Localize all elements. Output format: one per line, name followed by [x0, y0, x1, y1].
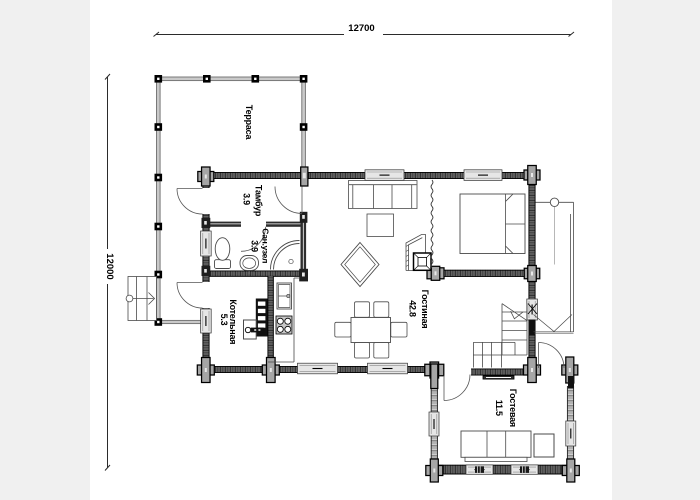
- svg-text:5.3: 5.3: [219, 314, 229, 326]
- svg-text:Гостевая: Гостевая: [508, 389, 518, 427]
- svg-text:11.5: 11.5: [494, 400, 504, 416]
- svg-text:Терраса: Терраса: [244, 105, 254, 141]
- svg-text:3.9: 3.9: [250, 240, 260, 252]
- svg-text:Сан.узел: Сан.узел: [261, 228, 271, 263]
- svg-text:Тамбур: Тамбур: [254, 185, 264, 217]
- svg-text:3.9: 3.9: [242, 193, 252, 205]
- svg-text:42.8: 42.8: [408, 300, 418, 317]
- svg-text:12700: 12700: [348, 23, 374, 34]
- svg-text:12000: 12000: [104, 253, 115, 279]
- svg-text:Гостиная: Гостиная: [420, 290, 430, 329]
